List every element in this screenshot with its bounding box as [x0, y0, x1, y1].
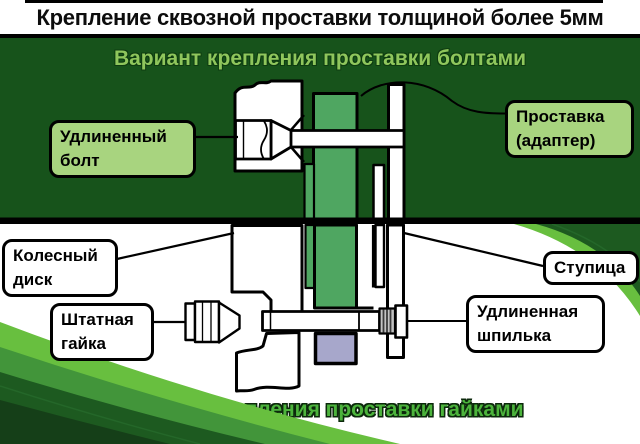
- page-title: Крепление сквозной проставки толщиной бо…: [0, 5, 640, 31]
- wheel-disc-label: Колесный диск: [2, 239, 118, 297]
- top-crop-artifact: [25, 0, 603, 3]
- infographic-canvas: Крепление сквозной проставки толщиной бо…: [0, 0, 640, 444]
- bolt-variant-heading: Вариант крепления проставки болтами: [0, 47, 640, 71]
- nut-variant-heading: Вариант крепления проставки гайками: [0, 398, 640, 422]
- spacer-adapter-label: Проставка (адаптер): [505, 100, 634, 158]
- hub-label: Ступица: [543, 251, 639, 285]
- stock-nut-label: Штатная гайка: [50, 303, 154, 361]
- extended-bolt-label: Удлиненный болт: [49, 120, 196, 178]
- extended-stud-label: Удлиненная шпилька: [466, 295, 605, 353]
